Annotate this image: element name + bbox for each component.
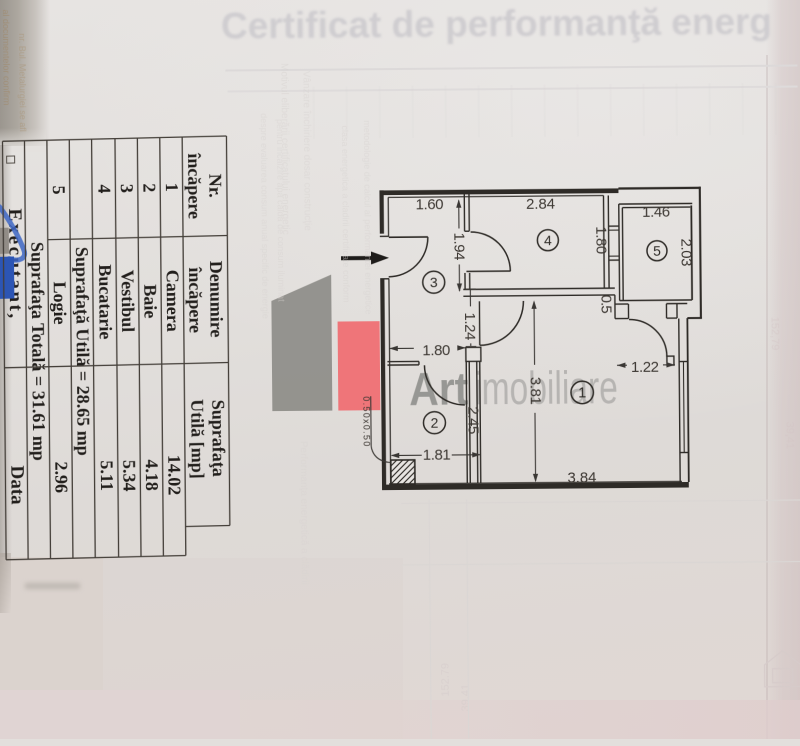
svg-text:metodologie de calcul al perfo: metodologie de calcul al performantei en… [362,120,374,314]
svg-text:152,79: 152,79 [769,317,781,351]
svg-text:4: 4 [544,232,552,248]
svg-text:2.45: 2.45 [464,406,481,434]
svg-text:0.5: 0.5 [597,295,614,314]
svg-text:5: 5 [653,243,661,259]
svg-text:3.84: 3.84 [567,469,596,486]
svg-text:3: 3 [430,274,438,290]
svg-text:1.60: 1.60 [415,196,443,213]
svg-text:3.81: 3.81 [527,377,544,405]
svg-text:1.80: 1.80 [592,226,609,254]
svg-text:1.81: 1.81 [423,447,451,464]
svg-text:0.50x0.50: 0.50x0.50 [361,396,371,446]
svg-text:39.41: 39.41 [460,684,472,712]
svg-text:clasa energetica a cladirii ce: clasa energetica a cladirii certificate … [340,125,352,302]
svg-text:despre evaluarea consum anual: despre evaluarea consum anual specific d… [259,113,271,319]
svg-text:2.84: 2.84 [526,196,555,213]
svg-text:1.22: 1.22 [631,359,659,376]
svg-text:pentru incalzire apa calda de: pentru incalzire apa calda de consum ilu… [275,119,287,302]
svg-text:1.94: 1.94 [450,232,467,260]
svg-text:1.46: 1.46 [642,204,670,221]
svg-text:2: 2 [430,415,438,431]
svg-text:1.80: 1.80 [422,342,450,359]
svg-text:Vânzare închiriere dosar const: Vânzare închiriere dosar construcţie [300,71,312,232]
svg-text:1: 1 [578,385,586,401]
svg-text:39,41: 39,41 [783,422,795,450]
svg-text:152.79: 152.79 [440,663,452,697]
svg-text:1.24: 1.24 [461,312,478,340]
svg-text:Performanţa energetică a clădi: Performanţa energetică a clădirii [298,441,310,585]
svg-text:2.03: 2.03 [677,238,694,266]
